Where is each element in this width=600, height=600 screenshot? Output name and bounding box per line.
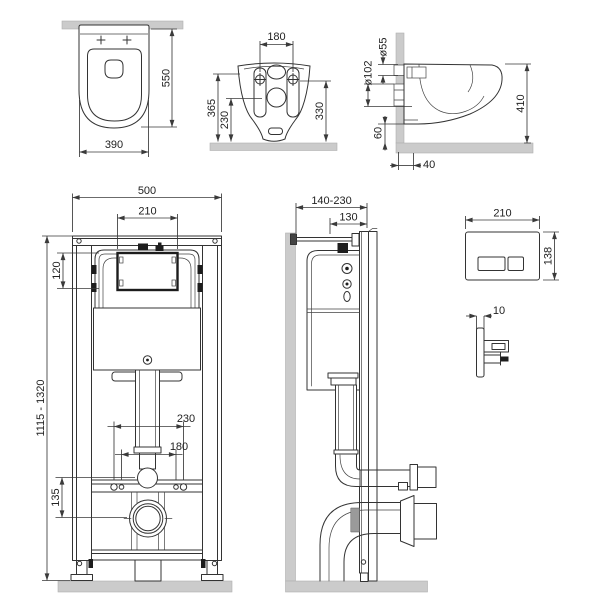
dim-bottom-gap-label: 60 — [373, 127, 385, 139]
wall-section-rear — [210, 143, 337, 151]
dim-frame-width-label: 500 — [138, 185, 156, 197]
drain-elbow-side — [320, 496, 437, 582]
cistern-side — [307, 243, 360, 390]
dim-bolt-inner-label: 180 — [170, 441, 188, 453]
plate-mechanism — [484, 341, 509, 366]
dim-rear-height-label: 365 — [206, 99, 218, 117]
frame-side-view: 140-230 130 — [286, 195, 437, 592]
inspection-window — [118, 253, 178, 290]
dim-wall-offset-lines — [390, 152, 421, 170]
installation-drawing-svg: 550 390 180 365 — [0, 0, 600, 600]
dim-plate-width-label: 210 — [493, 208, 511, 220]
bowl-outline — [79, 25, 149, 128]
wall-section-frame-side — [286, 233, 296, 581]
dim-side-depth-label: 410 — [515, 94, 527, 112]
dim-plate-height-label: 138 — [543, 247, 555, 265]
dim-bowl-height-label: 550 — [161, 69, 173, 87]
frame-front-view: 500 210 120 1115 - 1320 230 180 — [35, 185, 232, 592]
flush-plate-side-view: 10 — [466, 305, 509, 377]
dim-drain-offset-label: 135 — [50, 488, 62, 506]
plate-side-profile — [477, 328, 485, 377]
lower-crossbar-and-drain — [92, 468, 203, 581]
floor-section-frame-side — [286, 581, 428, 592]
flush-pipe-side — [334, 385, 436, 490]
toilet-rear-view: 180 365 230 330 — [206, 31, 337, 151]
dim-flush-dia-label: ø55 — [378, 38, 390, 57]
dim-rear-hole-height-label: 330 — [314, 102, 326, 120]
floor-section-frame — [58, 581, 232, 592]
floor-section-side — [396, 143, 533, 153]
dim-plate-thickness-label: 10 — [493, 305, 505, 317]
technical-drawing-page: 550 390 180 365 — [0, 0, 600, 600]
dim-bolt-outer-label: 230 — [177, 413, 195, 425]
dim-rear-hole-spacing-label: 180 — [267, 31, 285, 43]
flush-plate-front-view: 210 138 — [466, 208, 560, 281]
flush-plate-body — [466, 232, 540, 280]
toilet-side-view: ø55 ø102 60 40 410 — [363, 33, 534, 171]
dim-frame-height-label: 1115 - 1320 — [35, 379, 47, 436]
dim-window-width-label: 210 — [138, 206, 156, 218]
frame-side-rail — [360, 229, 378, 582]
dim-top-offset-label: 120 — [51, 261, 63, 279]
dim-rear-drain-height-label: 230 — [219, 111, 231, 129]
dim-drain-dia-label: ø102 — [363, 60, 375, 85]
dim-wall-offset-label: 40 — [423, 159, 435, 171]
dim-depth-range-label: 140-230 — [311, 195, 351, 207]
dim-bowl-width-label: 390 — [105, 139, 123, 151]
dim-depth-label: 130 — [339, 212, 357, 224]
wall-anchor-rod — [291, 234, 360, 247]
toilet-top-view: 550 390 — [62, 21, 183, 157]
